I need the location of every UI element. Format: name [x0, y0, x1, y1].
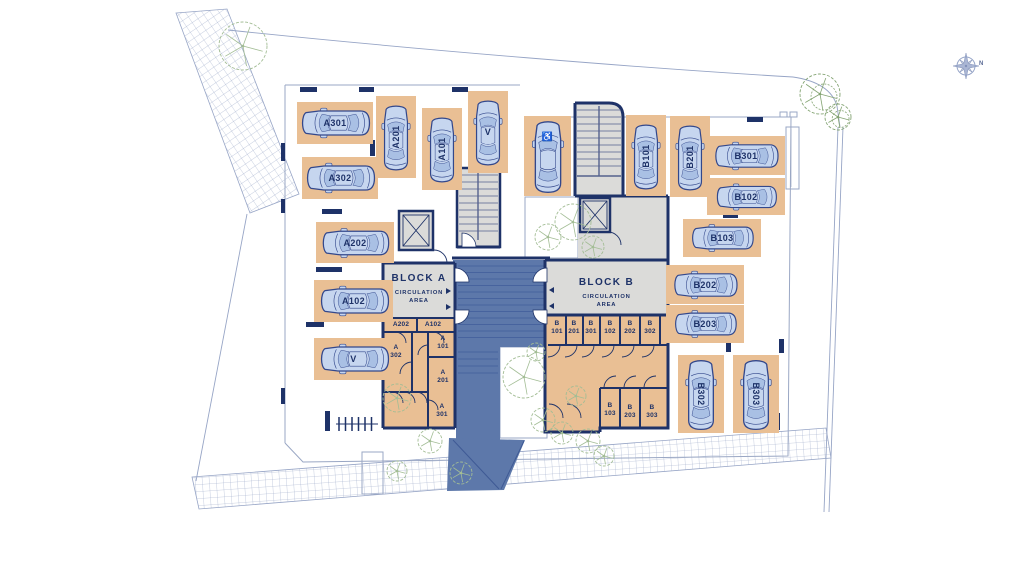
plan-drawing — [0, 0, 1024, 576]
bike-rack-icon — [325, 411, 378, 431]
tree-icon — [825, 104, 851, 130]
tree-icon — [418, 429, 442, 453]
road-hatch-top-left — [176, 9, 299, 213]
tree-icon — [503, 356, 545, 398]
block-a-circulation — [383, 263, 455, 318]
site-plan: A301 A302 A201 A101 V — [0, 0, 1024, 576]
compass-icon — [953, 53, 979, 79]
block-b-circulation — [545, 258, 668, 315]
block-b-storage — [545, 315, 668, 432]
tree-icon — [535, 224, 561, 250]
